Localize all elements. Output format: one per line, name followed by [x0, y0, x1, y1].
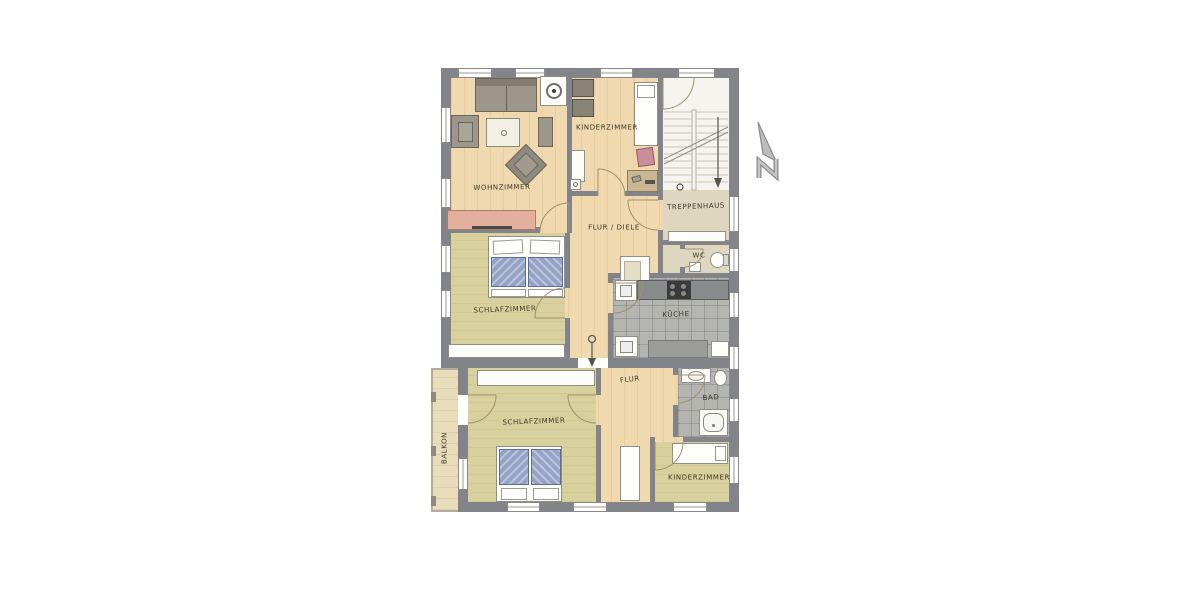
floor-plan-page: { "canvas": { "background": "#ffffff" },… [0, 0, 1200, 600]
label-wc: WC [692, 253, 705, 260]
floor-plan: WOHNZIMMER KINDERZIMMER TREPPENHAUS FLUR… [431, 60, 740, 513]
label-balkon: BALKON [442, 432, 449, 464]
label-wohnzimmer: WOHNZIMMER [473, 184, 530, 192]
label-kinderzimmer-top: KINDERZIMMER [576, 125, 638, 132]
label-kinderzimmer-bottom: KINDERZIMMER [668, 475, 730, 482]
label-flur-diele: FLUR / DIELE [588, 225, 640, 232]
label-kueche: KÜCHE [662, 311, 689, 319]
label-bad: BAD [702, 394, 719, 402]
entrance-arrow-icon [588, 336, 596, 368]
stairs [664, 110, 728, 190]
north-arrow-icon [752, 120, 786, 182]
doors [468, 78, 705, 470]
